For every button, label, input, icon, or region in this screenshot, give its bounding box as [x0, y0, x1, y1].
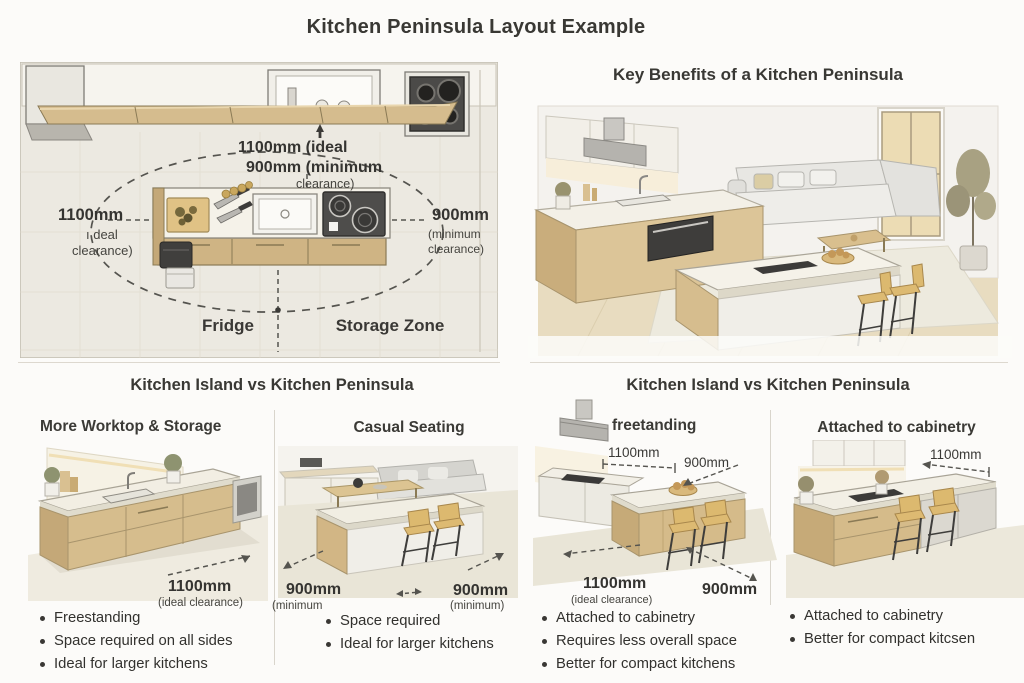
divider-vertical-bottom-left	[274, 410, 275, 665]
freestanding-illustration	[533, 398, 777, 598]
casual-right-measure: 900mm	[453, 582, 508, 600]
zone-label-storage: Storage Zone	[310, 317, 470, 336]
floorplan-right-measure-sub1: (minimum	[428, 228, 481, 241]
range-hood-chimney	[604, 118, 624, 140]
plant-icon	[164, 454, 182, 483]
divider-horizontal-right	[530, 362, 1008, 363]
list-item: Better for compact kitcsen	[786, 631, 975, 647]
floorplan-left-measure-sub1: ı deal	[86, 228, 118, 242]
list-item: Freestanding	[36, 610, 233, 626]
list-item: Space required	[322, 613, 494, 629]
range-hood	[560, 400, 608, 441]
attached-illustration	[786, 440, 1024, 598]
vase-icon	[60, 471, 70, 492]
benefits-scene	[528, 98, 1012, 358]
upper-cabinets	[813, 440, 905, 466]
floorplan-right-measure-sub2: clearance)	[428, 243, 484, 256]
list-item: Ideal for larger kitchens	[322, 636, 494, 652]
cutting-board	[167, 198, 209, 232]
vase-icon	[583, 184, 590, 201]
infographic-canvas: Kitchen Peninsula Layout Example	[0, 0, 1024, 683]
dishwasher	[233, 476, 261, 523]
floorplan-left-measure-sub2: clearance)	[72, 244, 133, 258]
freestanding-bottom-measure1-sub: (ideal clearance)	[571, 594, 652, 606]
page-title: Kitchen Peninsula Layout Example	[0, 16, 952, 38]
island-cooktop	[323, 192, 385, 236]
col-heading-worktop: More Worktop & Storage	[40, 418, 221, 435]
floorplan-left-measure: 1100mm	[58, 206, 123, 224]
list-item: Better for compact kitchens	[538, 656, 737, 672]
list-item: Attached to cabinetry	[786, 608, 975, 624]
casual-left-measure-sub: (minimum	[272, 600, 322, 613]
worktop-bullet-list: Freestanding Space required on all sides…	[36, 610, 233, 679]
floorplan-top-measure-ideal: 1100mm (ideal	[238, 139, 347, 157]
floorplan-top-measure-clearance: clearance)	[296, 178, 354, 192]
freestanding-bottom-measure2: 900mm	[702, 581, 757, 599]
benefits-illustration	[528, 98, 1012, 358]
floorplan-right-measure: 900mm	[432, 206, 489, 224]
freestanding-top-measure2: 900mm	[684, 456, 729, 471]
casual-right-measure-sub: (minimum)	[450, 600, 504, 613]
scene-fade	[528, 336, 1012, 358]
worktop-measure-sub: (ideal clearance)	[158, 597, 243, 610]
list-item: Attached to cabinetry	[538, 610, 737, 626]
attached-measure: 1100mm	[930, 448, 982, 463]
floorplan-top-measure-min: 900mm (minimum	[246, 159, 382, 177]
tv-object	[300, 458, 322, 467]
benefits-title: Key Benefits of a Kitchen Peninsula	[558, 66, 958, 85]
divider-horizontal-left	[18, 362, 500, 363]
list-item: Requires less overall space	[538, 633, 737, 649]
freestanding-bottom-measure1: 1100mm	[583, 575, 646, 593]
freestanding-top-measure1: 1100mm	[608, 446, 660, 461]
col-heading-casual-seating: Casual Seating	[329, 419, 489, 436]
dashed-line-dot	[275, 307, 281, 313]
casual-bullet-list: Space required Ideal for larger kitchens	[322, 613, 494, 659]
worktop-measure: 1100mm	[168, 578, 231, 596]
casual-left-measure: 900mm	[286, 581, 341, 599]
freestanding-bullet-list: Attached to cabinetry Requires less over…	[538, 610, 737, 679]
floorplan-panel: 1100mm (ideal 900mm (minimum clearance) …	[20, 62, 498, 358]
col-heading-attached: Attached to cabinetry	[814, 419, 979, 436]
comparison-right-title: Kitchen Island vs Kitchen Peninsula	[568, 376, 968, 394]
attached-bullet-list: Attached to cabinetry Better for compact…	[786, 608, 975, 654]
list-item: Ideal for larger kitchens	[36, 656, 233, 672]
wall-cooktop	[405, 72, 469, 136]
corner-cabinet	[26, 66, 92, 140]
worktop-illustration	[28, 443, 268, 601]
casual-seating-illustration	[278, 446, 518, 598]
comparison-left-title: Kitchen Island vs Kitchen Peninsula	[72, 376, 472, 394]
island-sink	[253, 194, 317, 234]
zone-label-fridge: Fridge	[168, 317, 288, 336]
list-item: Space required on all sides	[36, 633, 233, 649]
